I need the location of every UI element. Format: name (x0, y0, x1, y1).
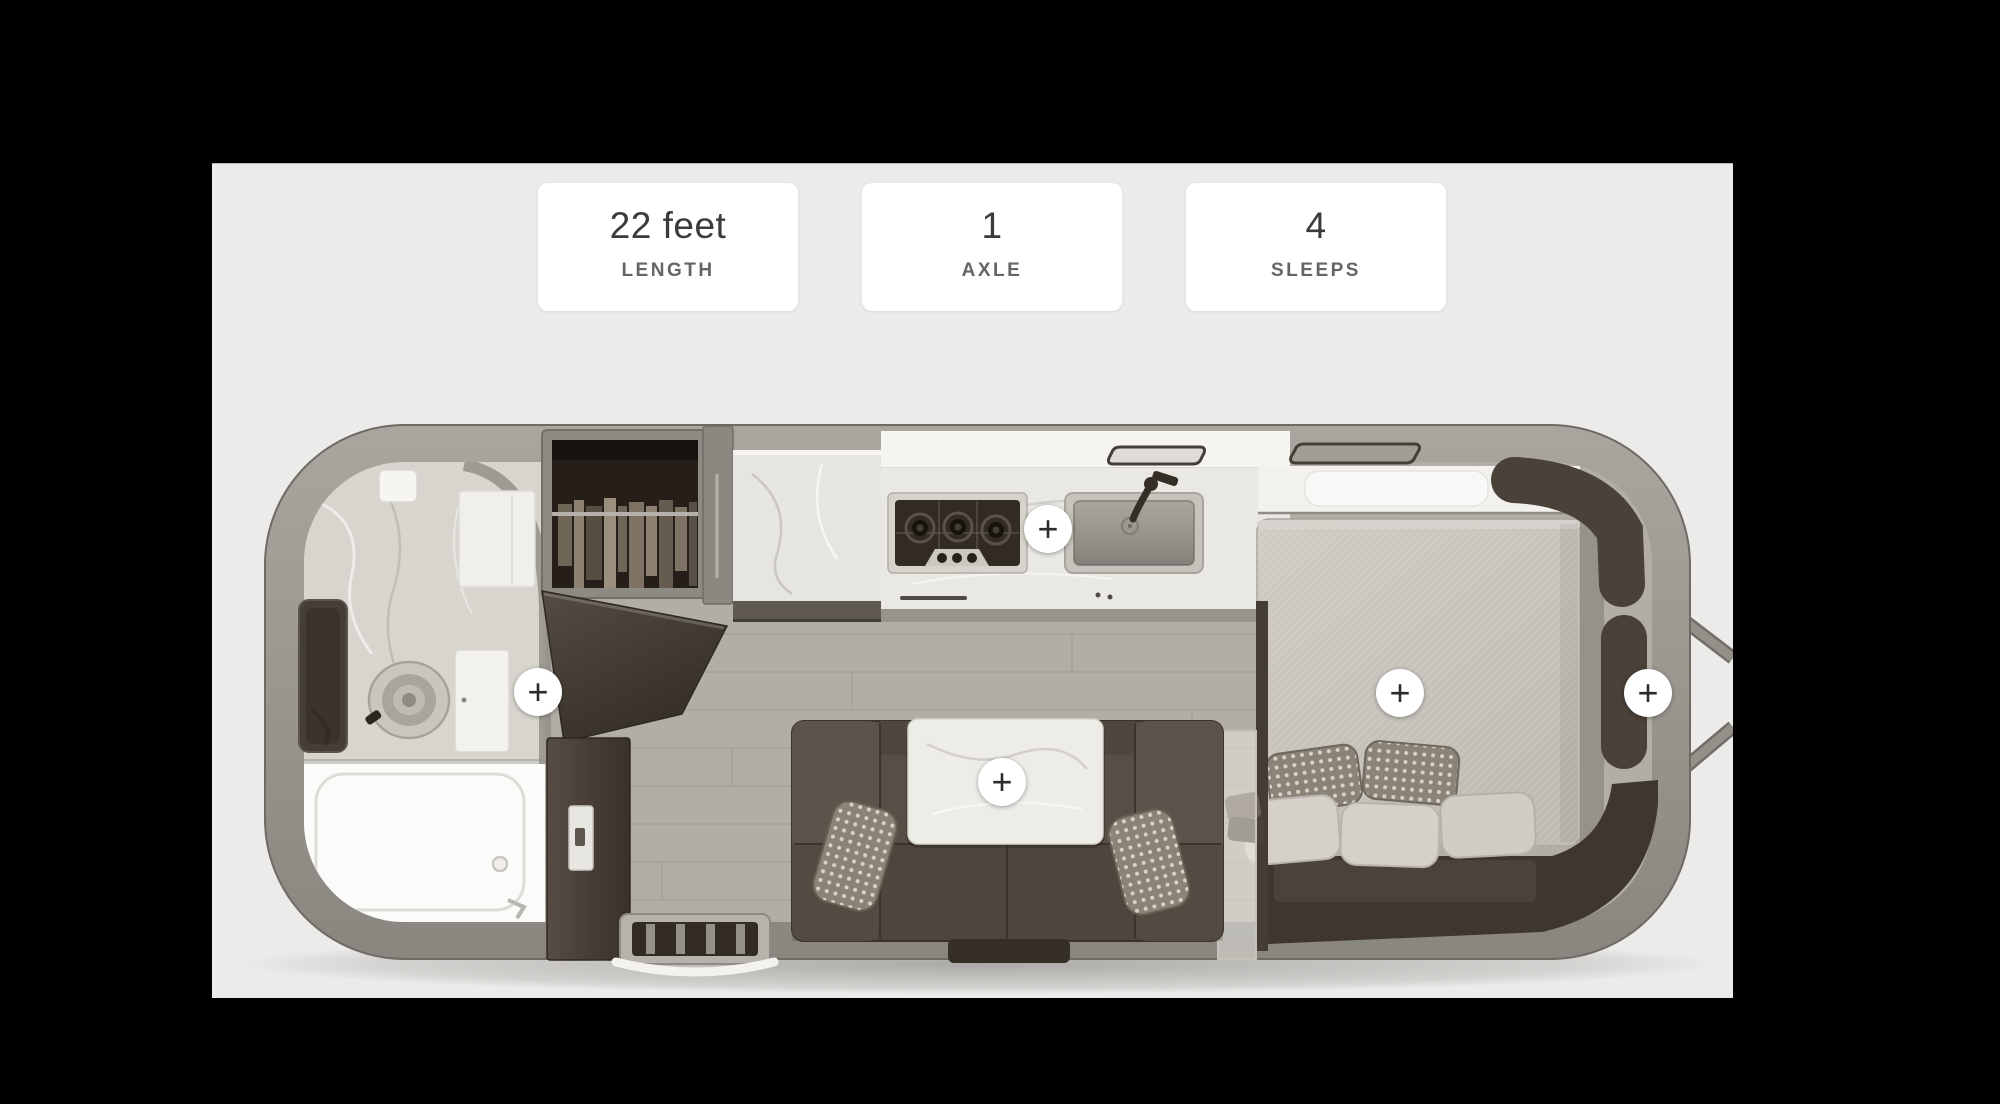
shower (304, 759, 545, 922)
hotspot-bathroom[interactable]: + (514, 668, 562, 716)
roof-vent-kitchen (1109, 447, 1205, 464)
drawer-handle (900, 596, 967, 600)
toilet-tank-shelf (379, 470, 417, 502)
bedroom-divider-wall (1256, 601, 1268, 951)
entry-door (547, 738, 630, 960)
floorplan-illustration (212, 164, 1733, 998)
sofa-step (948, 939, 1070, 963)
page-background: { "stats": { "cards": [ { "id": "length"… (0, 0, 2000, 1104)
bathroom-vanity (455, 650, 509, 752)
stove (888, 493, 1027, 573)
bathroom-cabinet (459, 491, 535, 587)
configurator-panel: 22 feet LENGTH 1 AXLE 4 SLEEPS (212, 163, 1733, 998)
hotspot-lounge-table[interactable]: + (978, 758, 1026, 806)
fridge-cabinet (703, 426, 733, 604)
entry-step (616, 914, 774, 972)
roof-vent-bedroom (1291, 444, 1420, 463)
hotspot-rear-storage[interactable]: + (1624, 669, 1672, 717)
kitchen-counter-block (733, 450, 881, 622)
hotspot-bed[interactable]: + (1376, 669, 1424, 717)
hotspot-kitchen[interactable]: + (1024, 505, 1072, 553)
wardrobe (542, 430, 708, 606)
kitchen-window-band (881, 431, 1290, 468)
